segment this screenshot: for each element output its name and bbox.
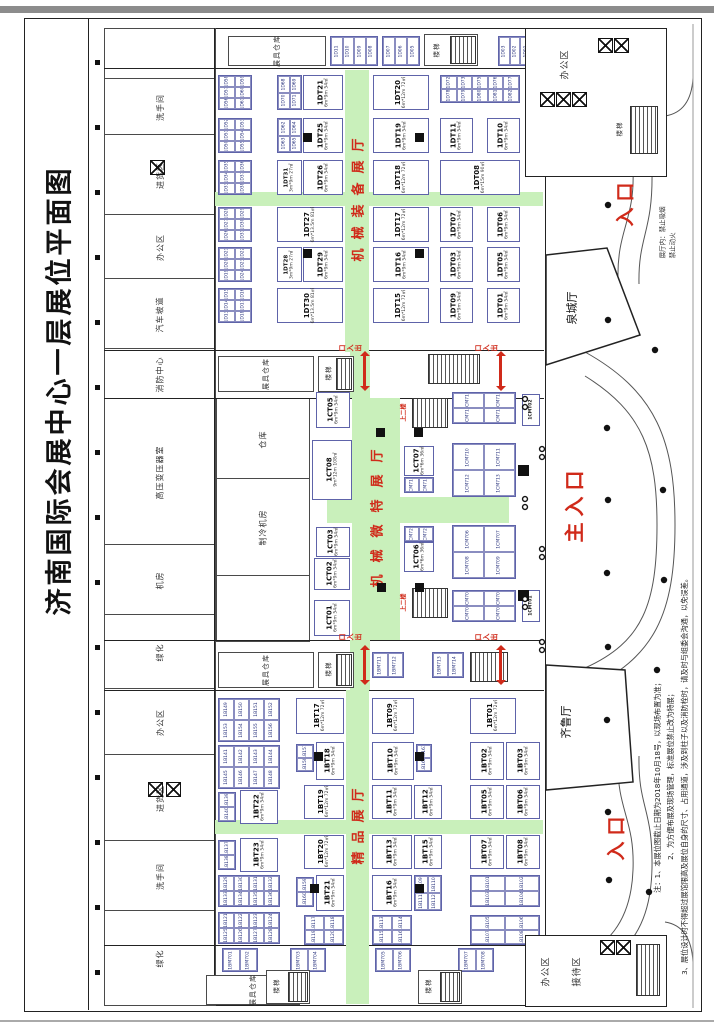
booth-cell: 1BM703 <box>291 949 308 971</box>
axis-dots <box>95 60 100 980</box>
booth-1DT10: 1DT106m*9m 54㎡ <box>487 118 520 153</box>
elevator-icon <box>540 92 555 107</box>
booth-1CT02: 1CT026m*9m 54㎡ <box>314 558 350 590</box>
booth-cell: 1CM713 <box>484 470 515 496</box>
elevator-icon <box>600 940 615 955</box>
hall-name-micro: 机械微特展厅 <box>291 502 461 522</box>
booth-cell: 1B132 <box>264 876 279 891</box>
column-pair-icon <box>521 595 529 611</box>
room-equip-store-mid1: 展具仓库 <box>218 356 314 392</box>
booth-cell: 1B112 <box>428 893 441 910</box>
booth-cell: 1B138 <box>219 855 235 869</box>
booth-cell: 1D73 <box>457 76 473 89</box>
column-marker <box>314 752 323 761</box>
booth-cluster-1D05-07: 1D071D061D05 <box>382 36 420 66</box>
booth-cell: 1B121 <box>219 913 234 928</box>
booth-cell: 1BM701 <box>223 949 240 971</box>
booth-cluster: 1BM7051BM706 <box>375 948 411 972</box>
main-entrance-label: 主入口 <box>533 492 613 514</box>
booth-1BT09: 1BT096m*12m 72㎡ <box>372 698 414 734</box>
booth-1CT06: 1CT066m*6m 36㎡ <box>404 542 434 572</box>
booth-cell: 1B136 <box>264 891 279 906</box>
column-marker <box>415 752 424 761</box>
column-marker <box>414 428 423 437</box>
booth-cell: 1D14 <box>219 300 235 311</box>
column-marker <box>415 583 424 592</box>
column-marker <box>415 133 424 142</box>
booth-cell: 1D10 <box>343 37 355 65</box>
column-pair-icon <box>521 495 529 511</box>
booth-cell: 1D03 <box>499 37 510 65</box>
booth-cell: 1D53 <box>235 119 251 130</box>
booth-cell: 1CM714 <box>453 393 484 408</box>
booth-cell: 1BM707 <box>459 949 476 971</box>
booth-cluster: 1B1371B138 <box>218 840 236 870</box>
notes-block: 注：1、本展位图截止日期为2018年10月18号，以现场布置为准； 2、为方便布… <box>446 764 714 808</box>
booth-cell: 1B137 <box>219 841 235 855</box>
stairs-label: 楼梯 <box>320 360 334 386</box>
elevator-icon <box>556 92 571 107</box>
booth-cluster: 1B1091B1101B1111B112 <box>414 875 442 911</box>
upstairs-label: 上二楼 <box>398 588 408 616</box>
booth-cell: 1D36 <box>235 161 251 172</box>
booth-cell: 1B142 <box>234 746 249 767</box>
booth-1CT03: 1CT036m*9m 54㎡ <box>316 527 350 557</box>
booth-cluster: 1CM7181CM719 <box>404 477 434 493</box>
booth-cluster: 1D351D361D341D371D331D38 <box>218 160 252 195</box>
booth-cell: 1B157 <box>297 745 313 758</box>
booth-cell: 1CM712 <box>453 470 484 496</box>
booth-cell: 1B133 <box>219 891 234 906</box>
booth-cell: 1D76 <box>488 76 504 89</box>
booth-1BT08: 1BT086m*9m 54㎡ <box>506 835 540 869</box>
booth-cell: 1D50 <box>219 141 235 152</box>
column-marker <box>376 428 385 437</box>
booth-1BT07: 1BT076m*9m 54㎡ <box>470 835 504 869</box>
booth-cell: 1B125 <box>219 928 234 943</box>
booth-cell: 1B110 <box>428 876 441 893</box>
wall <box>104 945 544 946</box>
booth-cluster: 1B1291B1301B1311B1321B1331B1341B1351B136 <box>218 875 280 907</box>
booth-cell: 1CM716 <box>453 408 484 423</box>
booth-cell: 1B123 <box>249 913 264 928</box>
room-green1: 绿化 <box>104 614 216 690</box>
booth-cell: 1D51 <box>219 130 235 141</box>
exit-arrow <box>499 354 502 388</box>
booth-cell: 1D72 <box>441 76 457 89</box>
booth-cluster: 1CM7101CM7111CM7121CM713 <box>452 443 516 497</box>
booth-cluster: 1D151D161D141D171D131D18 <box>218 288 252 323</box>
booth-cell: 1D27 <box>219 219 235 230</box>
booth-cluster: 1BM7111BM712 <box>372 652 404 678</box>
booth-cell: 1BM713 <box>433 653 448 677</box>
column-marker <box>303 249 312 258</box>
booth-cell: 1D21 <box>219 248 235 259</box>
booth-cell: 1B131 <box>249 876 264 891</box>
booth-cell: 1D61 <box>235 98 251 109</box>
booth-cell: 1B146 <box>234 767 249 788</box>
booth-cell: 1BM704 <box>308 949 325 971</box>
booth-cell: 1D06 <box>395 37 407 65</box>
booth-cell: 1B139 <box>219 793 235 807</box>
booth-cell: 1D79 <box>457 89 473 102</box>
booth-cell: 1D71 <box>290 93 302 110</box>
booth-cell: 1CM717 <box>484 408 515 423</box>
booth-cell: 1B118 <box>324 916 343 930</box>
elevator-icon <box>614 38 629 53</box>
booth-cluster: 1D681D691D701D71 <box>277 75 302 110</box>
booth-cluster: 1BM7071BM708 <box>458 948 494 972</box>
booth-1DT08: 1DT086m*15m 90㎡ <box>440 160 520 195</box>
room-office-left2: 办公区 <box>104 688 216 756</box>
booth-1CT08: 1CT089m*12m 108㎡ <box>312 440 352 500</box>
booth-cell: 1B102 <box>505 876 539 891</box>
booth-cell: 1D30 <box>235 219 251 230</box>
booth-1BT21: 1BT216m*9m 54㎡ <box>316 875 344 911</box>
stairs-shaft <box>428 354 480 384</box>
booth-cell: 1D60 <box>235 87 251 98</box>
room-goods-bottom: 进货区 <box>104 754 216 842</box>
booth-1DT17: 1DT176m*12m 72㎡ <box>373 207 429 242</box>
booth-cell: 1CM701 <box>453 591 484 606</box>
booth-cell: 1B120 <box>324 930 343 944</box>
booth-cell: 1BM714 <box>448 653 463 677</box>
booth-1BT23: 1BT236m*9m 54㎡ <box>240 838 278 872</box>
booth-cell: 1B141 <box>219 746 234 767</box>
booth-cluster: 1CM7141CM7151CM7161CM717 <box>452 392 516 424</box>
stairs-icon <box>288 972 308 1002</box>
booth-cell: 1B104 <box>505 891 539 906</box>
booth-cluster: 1B1391B140 <box>218 792 236 822</box>
booth-1DT30: 1DT306m*13.5m 81㎡ <box>277 288 343 323</box>
booth-cluster: 1D281D291D271D301D261D31 <box>218 207 252 242</box>
exit-arrow <box>499 648 502 682</box>
booth-1DT03: 1DT036m*9m 54㎡ <box>440 247 473 282</box>
booth-cell: 1D38 <box>235 183 251 194</box>
booth-1DT18: 1DT186m*12m 72㎡ <box>373 160 429 195</box>
booth-cluster: 1B1491B1501B1511B1521B1531B1541B1551B156 <box>218 698 280 742</box>
booth-cell: 1D20 <box>219 259 235 270</box>
stairs-label: 楼梯 <box>612 112 624 146</box>
booth-1BT22: 1BT226m*9m 54㎡ <box>240 790 278 824</box>
booth-cell: 1B103 <box>471 891 505 906</box>
note-line-3: 3、展位设计时不得超过展馆限高及展位自身的尺寸、占用通道，涉及到柱子以及消防栓时… <box>678 575 691 997</box>
booth-cell: 1BM702 <box>240 949 257 971</box>
booth-cell: 1CM718 <box>405 478 419 492</box>
booth-cell: 1CM710 <box>453 444 484 470</box>
booth-1BT13: 1BT136m*9m 54㎡ <box>372 835 412 869</box>
booth-cell: 1D78 <box>441 89 457 102</box>
room-equip-store-top: 展具仓库 <box>228 36 326 66</box>
booth-cell: 1B114 <box>392 916 411 930</box>
booth-1BT15: 1BT156m*9m 54㎡ <box>414 835 442 869</box>
quancheng-hall-label: 泉城厅 <box>546 300 596 316</box>
booth-cell: 1D23 <box>235 259 251 270</box>
booth-1BT17: 1BT176m*12m 72㎡ <box>296 698 344 734</box>
booth-1BT01: 1BT016m*12m 72㎡ <box>470 698 516 734</box>
elevator-icon <box>150 160 165 175</box>
stairs-to-2f-top <box>412 398 448 428</box>
booth-cell: 1D08 <box>366 37 378 65</box>
booth-cell: 1CM720 <box>405 527 419 541</box>
booth-cell: 1B130 <box>234 876 249 891</box>
booth-cell: 1D55 <box>235 141 251 152</box>
booth-cell: 1D56 <box>219 98 235 109</box>
room-unlabeled <box>104 28 216 80</box>
stairs-label: 楼梯 <box>420 974 434 998</box>
booth-1BT18: 1BT186m*9m 54㎡ <box>316 742 344 780</box>
booth-cell: 1B106 <box>505 916 539 930</box>
booth-cluster: 1CM7201CM721 <box>404 526 434 542</box>
column-pair-icon <box>521 395 529 411</box>
booth-cell: 1D82 <box>503 89 519 102</box>
booth-cell: 1BM708 <box>476 949 493 971</box>
booth-cell: 1B113 <box>373 916 392 930</box>
booth-cell: 1D13 <box>219 311 235 322</box>
booth-1DT05: 1DT056m*9m 54㎡ <box>487 247 520 282</box>
room-warehouse: 仓库 <box>216 398 310 480</box>
booth-cell: 1D70 <box>278 93 290 110</box>
booth-cell: 1B122 <box>234 913 249 928</box>
room-unlabeled <box>216 575 310 642</box>
stairs-shaft <box>470 652 508 682</box>
booth-1BT20: 1BT206m*12m 72㎡ <box>304 835 344 869</box>
stairs-icon <box>630 106 658 154</box>
elevator-icon <box>572 92 587 107</box>
booth-1DT28: 1DT283m*9m 27㎡ <box>277 247 302 282</box>
wall <box>104 690 544 691</box>
elevator-icon <box>148 782 163 797</box>
booth-cell: 1B134 <box>234 891 249 906</box>
booth-cluster: 1D621D641D631D65 <box>277 118 302 153</box>
booth-cell: 1B111 <box>415 893 428 910</box>
booth-cluster: 1D721D731D751D761D771D781D791D801D811D82 <box>440 75 520 103</box>
booth-cell: 1D09 <box>354 37 366 65</box>
booth-cell: 1D19 <box>219 270 235 281</box>
booth-cell: 1B128 <box>264 928 279 943</box>
title-divider <box>88 18 89 1010</box>
booth-cell: 1B145 <box>219 767 234 788</box>
booth-cell: 1CM702 <box>484 591 515 606</box>
booth-1BT10: 1BT106m*9m 54㎡ <box>372 742 414 780</box>
room-transformer: 高压变压器室 <box>104 398 216 546</box>
booth-cell: 1B119 <box>305 930 324 944</box>
column-marker <box>415 249 424 258</box>
upstairs-label: 上二楼 <box>398 398 408 426</box>
room-fire-center: 消防中心 <box>104 348 216 400</box>
booth-cell: 1CM708 <box>453 552 484 578</box>
elevator-icon <box>166 782 181 797</box>
room-restroom-top: 洗手间 <box>104 78 216 136</box>
room-goods-top: 进货区 <box>104 134 216 216</box>
booth-cell: 1CM706 <box>453 526 484 552</box>
booth-cell: 1BM712 <box>388 653 403 677</box>
booth-cell: 1D07 <box>383 37 395 65</box>
booth-1BT16: 1BT166m*9m 54㎡ <box>372 875 412 911</box>
booth-cell: 1B151 <box>249 699 264 720</box>
booth-cell: 1D54 <box>235 130 251 141</box>
booth-cell: 1B129 <box>219 876 234 891</box>
booth-cell: 1D63 <box>278 136 290 153</box>
booth-cell: 1B105 <box>471 916 505 930</box>
booth-cell: 1CM704 <box>484 606 515 621</box>
booth-1DT09: 1DT096m*9m 54㎡ <box>440 288 473 323</box>
booth-cell: 1CM721 <box>419 527 433 541</box>
room-restroom-bottom: 洗手间 <box>104 840 216 912</box>
booth-1DT20: 1DT206m*12m 72㎡ <box>373 75 429 110</box>
booth-cell: 1B158 <box>297 758 313 771</box>
booth-cell: 1D05 <box>407 37 419 65</box>
booth-cell: 1D68 <box>278 76 290 93</box>
booth-cell: 1B150 <box>234 699 249 720</box>
booth-cell: 1D15 <box>219 289 235 300</box>
booth-cell: 1D29 <box>235 208 251 219</box>
booth-cell: 1CM707 <box>484 526 515 552</box>
column-marker <box>310 884 319 893</box>
booth-1BT11: 1BT116m*9m 54㎡ <box>372 785 412 819</box>
booth-cell: 1B152 <box>264 699 279 720</box>
room-reception: 接待区 <box>564 948 588 994</box>
page-trim-bottom <box>0 1020 714 1022</box>
elevator-icon <box>616 940 631 955</box>
booth-cell: 1D24 <box>235 270 251 281</box>
booth-1CT01: 1CT016m*9m 54㎡ <box>314 600 350 636</box>
booth-1DT11: 1DT116m*9m 54㎡ <box>440 118 473 153</box>
booth-cell: 1B124 <box>264 913 279 928</box>
booth-cell: 1B115 <box>373 930 392 944</box>
booth-1CT05: 1CT056m*9m 54㎡ <box>316 392 350 428</box>
booth-1DT31: 1DT313m*9m 27㎡ <box>277 160 302 195</box>
booth-1CT07: 1CT076m*6m 36㎡ <box>404 446 434 476</box>
column-marker <box>518 465 529 476</box>
no-smoking-warning: 展厅内：禁止吸烟禁止动火 <box>636 222 700 242</box>
booth-cell: 1B155 <box>249 720 264 741</box>
booth-cluster: 1BM7031BM704 <box>290 948 326 972</box>
booth-cell: 1B126 <box>234 928 249 943</box>
booth-cluster: 1B1011B1021B1031B104 <box>470 875 540 907</box>
exit-arrow <box>363 354 366 388</box>
booth-cell: 1B148 <box>264 767 279 788</box>
stairs-icon <box>336 358 352 390</box>
booth-cell: 1D34 <box>219 172 235 183</box>
booth-1DT15: 1DT156m*12m 72㎡ <box>373 288 429 323</box>
note-line-2: 2、为方便布展及现场管理，标准展位禁止改为特展； <box>664 575 677 997</box>
booth-cell: 1CM719 <box>419 478 433 492</box>
exit-arrow <box>363 648 366 682</box>
stairs-icon <box>336 654 352 686</box>
column-marker <box>377 583 386 592</box>
booth-cell: 1D33 <box>219 183 235 194</box>
room-office-left1: 办公区 <box>104 214 216 280</box>
booth-cell: 1CM703 <box>453 606 484 621</box>
room-car-ramp: 汽车坡道 <box>104 278 216 350</box>
stairs-label: 楼梯 <box>428 38 442 62</box>
stairs-to-2f-bottom <box>412 588 448 618</box>
booth-cell: 1D58 <box>219 76 235 87</box>
booth-1DT27: 1DT276m*13.5m 81㎡ <box>277 207 343 242</box>
booth-cell: 1D18 <box>235 311 251 322</box>
booth-cell: 1B156 <box>264 720 279 741</box>
booth-cell: 1BM705 <box>376 949 393 971</box>
booth-cell: 1B140 <box>219 807 235 821</box>
entrance-bottom-label: 入口 <box>585 824 645 846</box>
stairs-label: 楼梯 <box>268 974 282 998</box>
booth-cluster: 1D211D221D201D231D191D24 <box>218 247 252 282</box>
note-line-1: 注：1、本展位图截止日期为2018年10月18号，以现场布置为准； <box>651 575 664 997</box>
booth-cell: 1D81 <box>488 89 504 102</box>
booth-cell: 1D77 <box>503 76 519 89</box>
booth-cell: 1BM711 <box>373 653 388 677</box>
column-marker <box>303 133 312 142</box>
booth-cluster: 1BM7011BM702 <box>222 948 258 972</box>
booth-cell: 1BM706 <box>393 949 410 971</box>
booth-cell: 1B160 <box>297 892 313 906</box>
booth-cell: 1D11 <box>331 37 343 65</box>
booth-cell: 1D57 <box>219 87 235 98</box>
booth-cluster: 1D581D591D571D601D561D61 <box>218 75 252 110</box>
booth-cell: 1B149 <box>219 699 234 720</box>
wall <box>104 68 544 69</box>
booth-cell: 1D26 <box>219 230 235 241</box>
booth-cluster: 1B1211B1221B1231B1241B1251B1261B1271B128 <box>218 912 280 944</box>
booth-cell: 1B107 <box>471 930 505 944</box>
booth-cluster: 1B1171B1181B1191B120 <box>304 915 344 945</box>
booth-cluster-1D08-11: 1D111D101D091D08 <box>330 36 378 66</box>
booth-cell: 1D37 <box>235 172 251 183</box>
booth-cluster: 1B1571B158 <box>296 744 314 772</box>
floor-plan-page: 济南国际会展中心一层展位平面图 洗手间 进货区 办公区 汽车坡道 消防中心 高压… <box>0 0 714 1029</box>
booth-cell: 1B127 <box>249 928 264 943</box>
booth-cell: 1B116 <box>392 930 411 944</box>
room-machine: 机房 <box>104 544 216 616</box>
booth-cell: 1B154 <box>234 720 249 741</box>
booth-cluster: 1CM7011CM7021CM7031CM704 <box>452 590 516 622</box>
stairs-icon <box>440 972 460 1002</box>
booth-cell: 1CM709 <box>484 552 515 578</box>
booth-cell: 1B153 <box>219 720 234 741</box>
room-office-topright: 办公区 <box>552 44 576 84</box>
booth-cell: 1D22 <box>235 248 251 259</box>
page-trim-top <box>0 6 714 13</box>
booth-cluster: 1CM7061CM7071CM7081CM709 <box>452 525 516 579</box>
booth-1BT19: 1BT196m*12m 72㎡ <box>304 785 344 819</box>
stairs-label: 楼梯 <box>320 656 334 682</box>
wall <box>214 28 215 1004</box>
booth-cell: 1B143 <box>249 746 264 767</box>
booth-cell: 1B117 <box>305 916 324 930</box>
booth-cell: 1D31 <box>235 230 251 241</box>
booth-cluster: 1BM7131BM714 <box>432 652 464 678</box>
booth-cell: 1B147 <box>249 767 264 788</box>
booth-1BT12: 1BT126m*9m 54㎡ <box>414 785 442 819</box>
stairs-icon <box>450 36 476 64</box>
booth-cell: 1D75 <box>472 76 488 89</box>
booth-cell: 1D65 <box>290 136 302 153</box>
booth-cell: 1D69 <box>290 76 302 93</box>
entrance-top-label: 入口 <box>594 190 654 212</box>
booth-cell: 1CM711 <box>484 444 515 470</box>
booth-1DT01: 1DT016m*9m 54㎡ <box>487 288 520 323</box>
room-green2: 绿化 <box>104 910 216 1006</box>
qilu-hall-label: 齐鲁厅 <box>540 714 590 730</box>
column-marker <box>415 884 424 893</box>
booth-cell: 1D59 <box>235 76 251 87</box>
booth-cell: 1D17 <box>235 300 251 311</box>
room-cooling-plant: 制冷机房 <box>216 478 310 577</box>
booth-cell: 1D16 <box>235 289 251 300</box>
booth-1DT21: 1DT216m*9m 54㎡ <box>303 75 343 110</box>
booth-cell: 1B101 <box>471 876 505 891</box>
